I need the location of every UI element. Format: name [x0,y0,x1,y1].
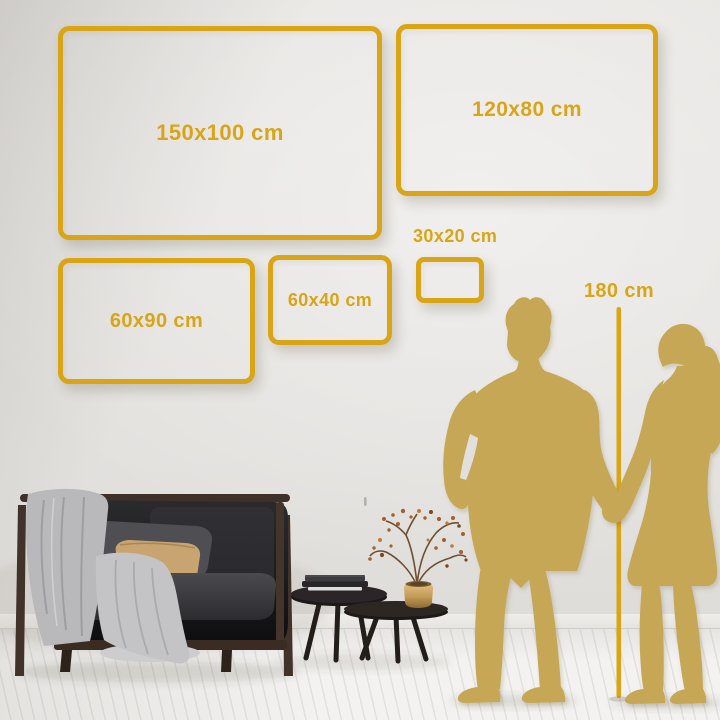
sofa-wood-leg-outer-left [15,505,26,676]
book-pages [308,587,362,591]
blossoms [368,509,467,568]
frame-60x90-label: 60x90 cm [110,310,203,333]
clasped-hands [602,501,626,523]
frame-120x80-label: 120x80 cm [472,98,582,122]
frame-150x100: 150x100 cm [58,26,382,240]
wall-art-size-guide: 150x100 cm 120x80 cm 60x90 cm 60x40 cm 3… [0,0,720,720]
vase-opening [410,582,428,586]
sofa-leg [221,650,232,672]
table-b-top [344,601,448,617]
woman-left-foot [625,689,665,704]
man-right-leg [528,569,561,689]
frame-60x90: 60x90 cm [58,258,255,384]
man-right-foot [522,687,565,703]
woman-right-leg [673,584,703,691]
wall-outlet-mark [364,497,367,506]
book-dark [302,581,368,587]
branches [370,514,466,584]
man-left-leg [475,566,512,689]
frame-30x20 [416,257,484,303]
frame-60x40: 60x40 cm [268,255,392,345]
woman-right-foot [670,689,706,704]
frame-30x20-label: 30x20 cm [413,226,497,247]
stacked-books [302,575,368,591]
height-reference-label: 180 cm [558,280,680,303]
frame-150x100-label: 150x100 cm [156,120,284,146]
sofa-leg [60,650,72,672]
book-top-face [305,575,365,577]
man-left-foot [458,687,501,703]
woman-left-leg [640,584,664,691]
table-b-legs [362,614,426,661]
sofa-illustration [15,489,293,676]
man-silhouette [443,297,623,703]
man-head [506,297,552,362]
frame-120x80: 120x80 cm [396,24,658,196]
nesting-coffee-tables [291,509,468,661]
frame-60x40-label: 60x40 cm [288,290,372,311]
sofa-wood-pole-right [276,502,284,645]
